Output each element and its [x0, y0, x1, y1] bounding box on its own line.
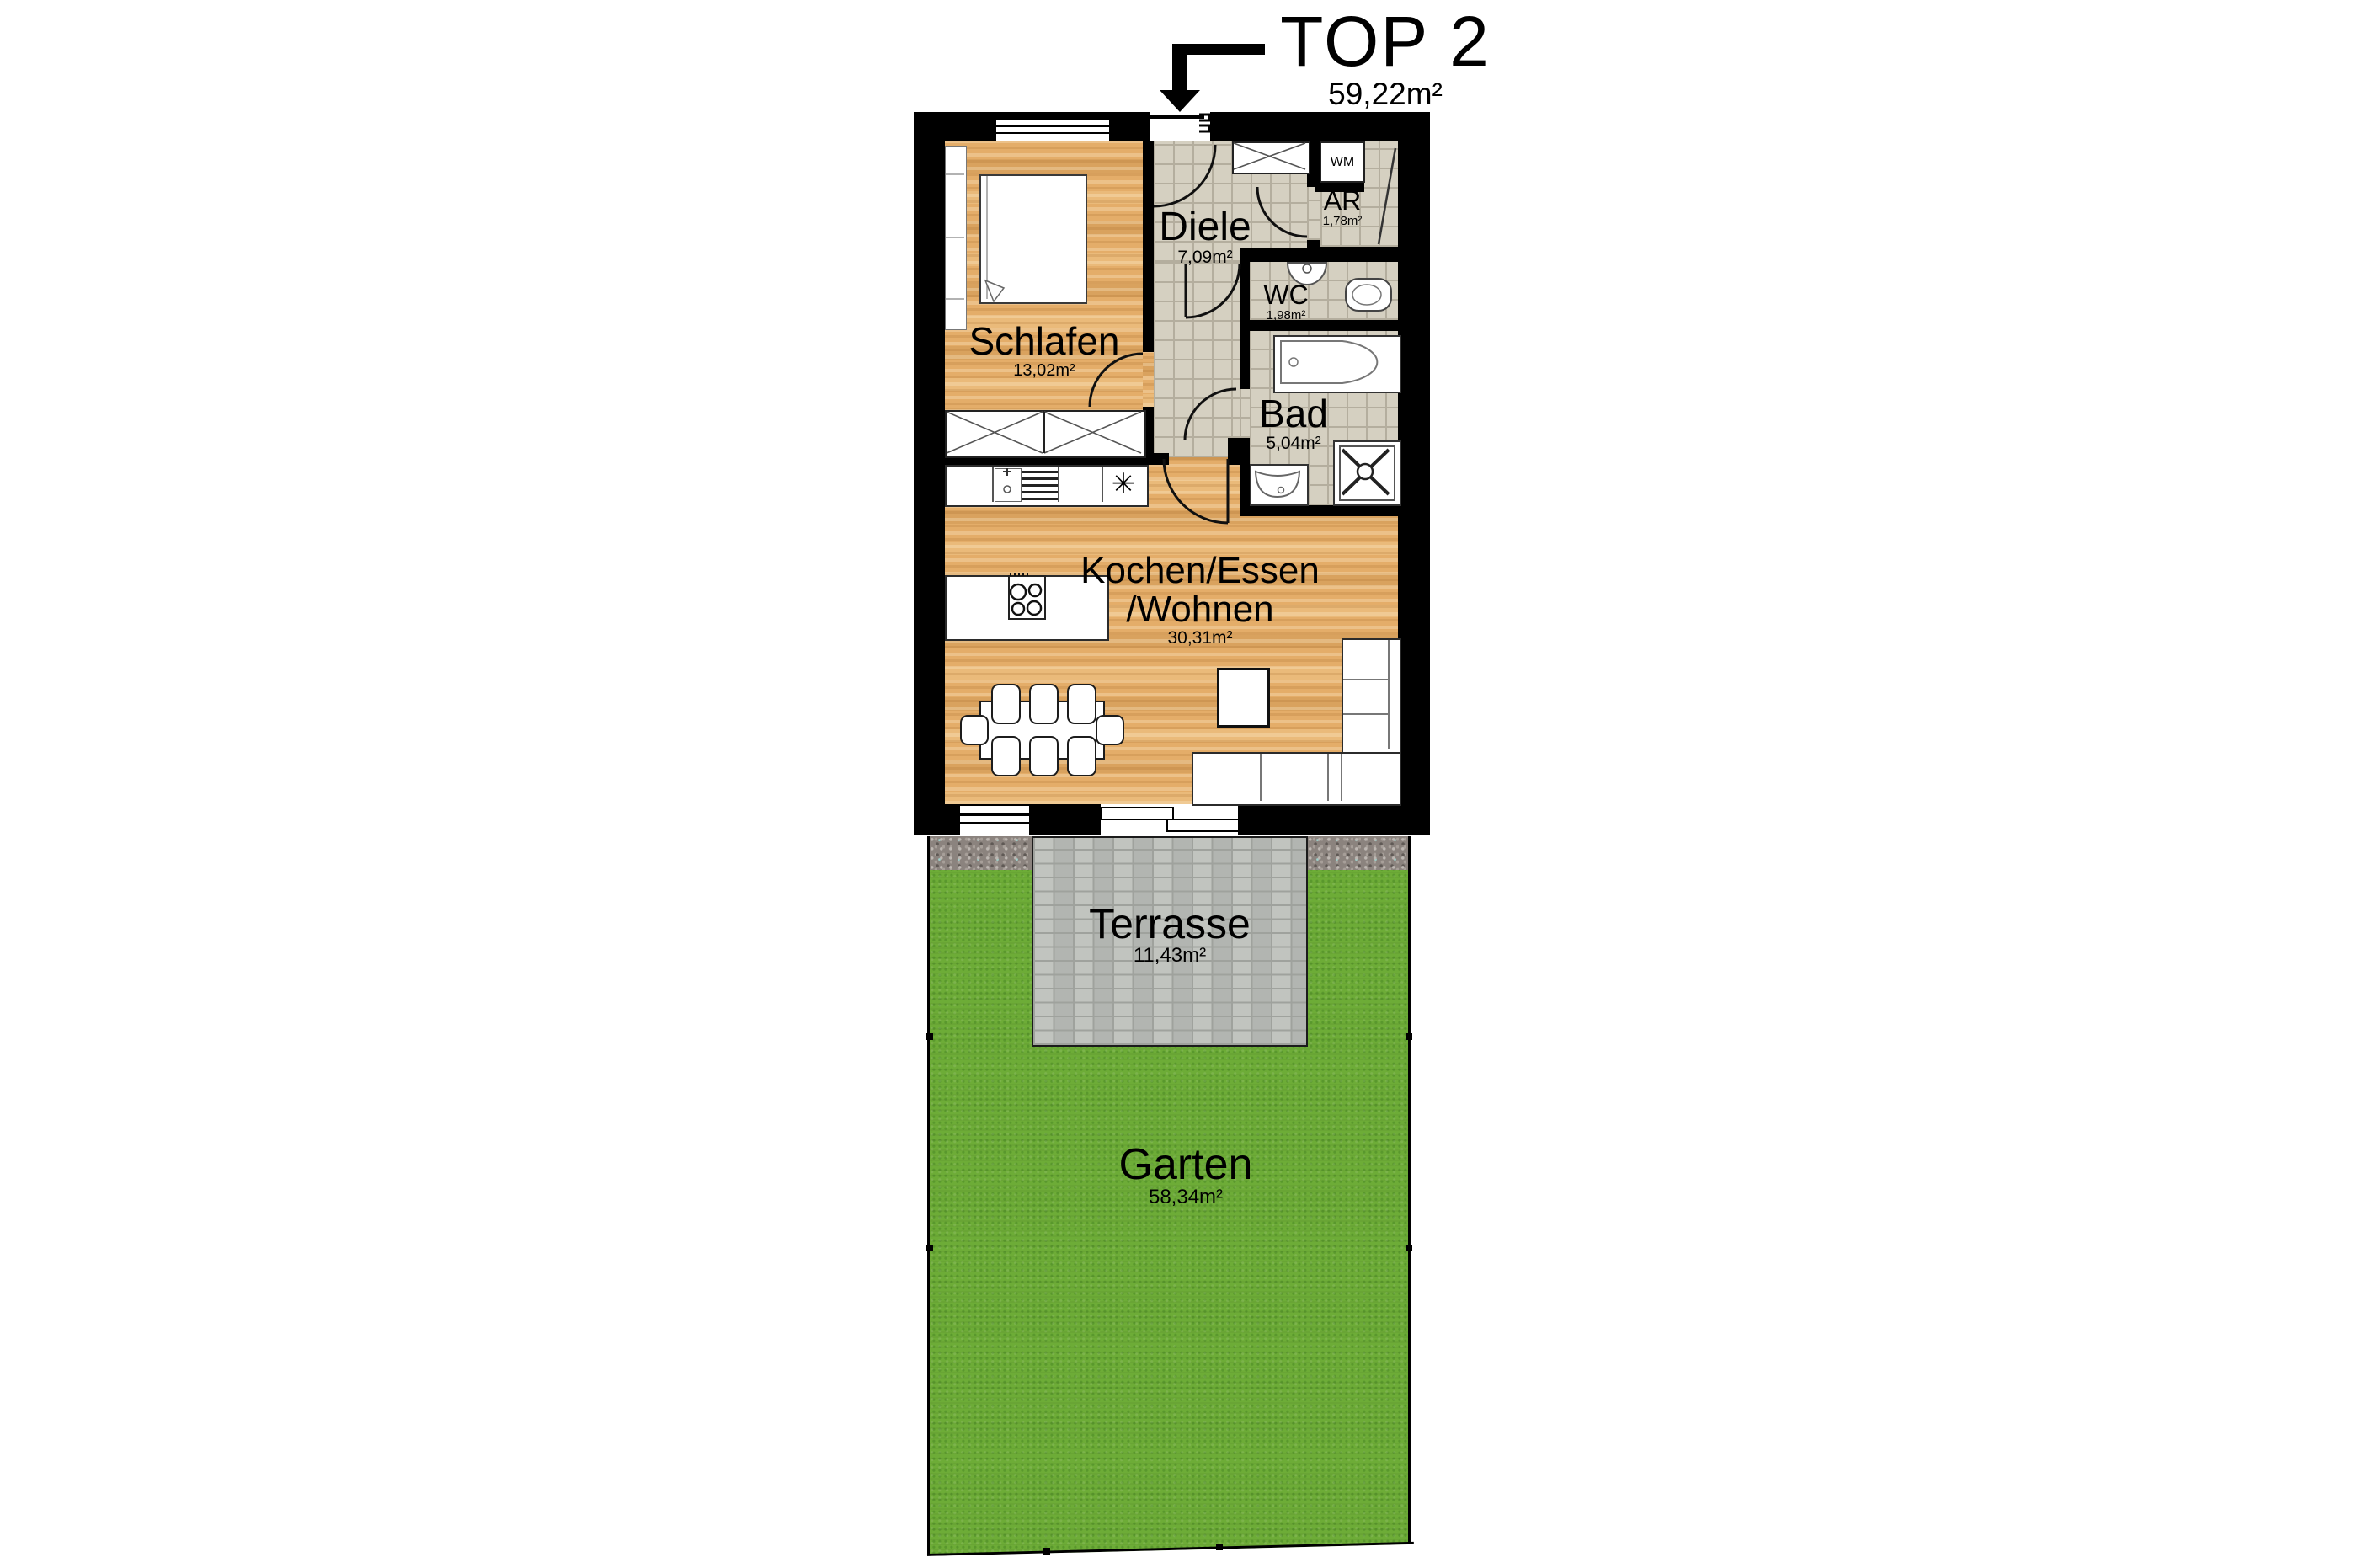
- room-label-garten: Garten 58,34m²: [1119, 1142, 1253, 1208]
- sliding-door-panel: [1166, 819, 1240, 832]
- room-label-ar: AR 1,78m²: [1323, 187, 1363, 228]
- sofa: [1192, 752, 1401, 806]
- counter-divider: [1102, 467, 1103, 502]
- chair: [1067, 736, 1096, 776]
- floor-plan-canvas: WM ✳: [0, 0, 2358, 1568]
- entrance-arrow-head: [1160, 90, 1200, 112]
- wall: [1307, 240, 1320, 259]
- washing-machine-label: WM: [1331, 155, 1354, 170]
- corridor-floor: [1154, 262, 1240, 457]
- boundary-marker: [1406, 1033, 1412, 1040]
- fridge-symbol: ✳: [1112, 470, 1136, 499]
- bad-door-threshold: [1240, 389, 1250, 438]
- entrance-door-leaf: [1150, 115, 1204, 119]
- wall: [1143, 141, 1154, 352]
- chair: [991, 684, 1021, 724]
- bathtub: [1273, 335, 1401, 393]
- garden-left-border: [927, 836, 930, 1555]
- boundary-marker: [926, 1033, 933, 1040]
- boundary-marker: [1216, 1544, 1223, 1550]
- room-label-schlafen: Schlafen 13,02m²: [968, 322, 1119, 380]
- room-label-wc: WC 1,98m²: [1263, 281, 1308, 323]
- gravel-strip-right: [1308, 836, 1408, 870]
- schlafen-door-threshold: [1143, 352, 1154, 407]
- room-label-wohnen: Kochen/Essen /Wohnen 30,31m²: [1080, 552, 1320, 647]
- sliding-door-panel: [1101, 807, 1174, 820]
- room-label-diele: Diele 7,09m²: [1159, 206, 1251, 267]
- wardrobe: [945, 410, 1146, 458]
- unit-area: 59,22m²: [1328, 78, 1443, 110]
- room-label-terrasse: Terrasse 11,43m²: [1089, 902, 1251, 967]
- sofa: [1342, 638, 1401, 755]
- chair: [1096, 715, 1124, 745]
- boundary-marker: [1406, 1245, 1412, 1251]
- wall: [1228, 438, 1240, 465]
- gravel-strip-left: [930, 836, 1032, 870]
- kitchen-sink: [995, 468, 1022, 502]
- chair: [1029, 736, 1059, 776]
- unit-title: TOP 2 59,22m²: [1280, 5, 1491, 111]
- boundary-marker: [1043, 1548, 1050, 1555]
- wall: [1240, 505, 1398, 516]
- shower-tray: [1339, 445, 1395, 501]
- room-label-bad: Bad 5,04m²: [1259, 394, 1328, 453]
- chair: [1029, 684, 1059, 724]
- chair: [1067, 684, 1096, 724]
- counter-divider: [992, 467, 994, 502]
- counter-divider: [1058, 467, 1059, 502]
- chair: [960, 715, 989, 745]
- boundary-marker: [926, 1245, 933, 1251]
- closet: [945, 146, 967, 330]
- wardrobe: [1232, 141, 1310, 174]
- ar-door-threshold: [1307, 187, 1320, 240]
- cooktop: [1008, 575, 1046, 620]
- coffee-table: [1217, 668, 1270, 728]
- unit-name: TOP 2: [1280, 5, 1491, 78]
- dishwasher: [1022, 469, 1058, 500]
- garden-right-border: [1408, 836, 1411, 1544]
- chair: [991, 736, 1021, 776]
- window: [996, 120, 1109, 141]
- bed: [979, 174, 1087, 304]
- window: [960, 806, 1029, 835]
- entrance-arrow: [1172, 44, 1187, 90]
- washing-machine: WM: [1320, 141, 1365, 183]
- bathroom-sink: [1250, 464, 1309, 506]
